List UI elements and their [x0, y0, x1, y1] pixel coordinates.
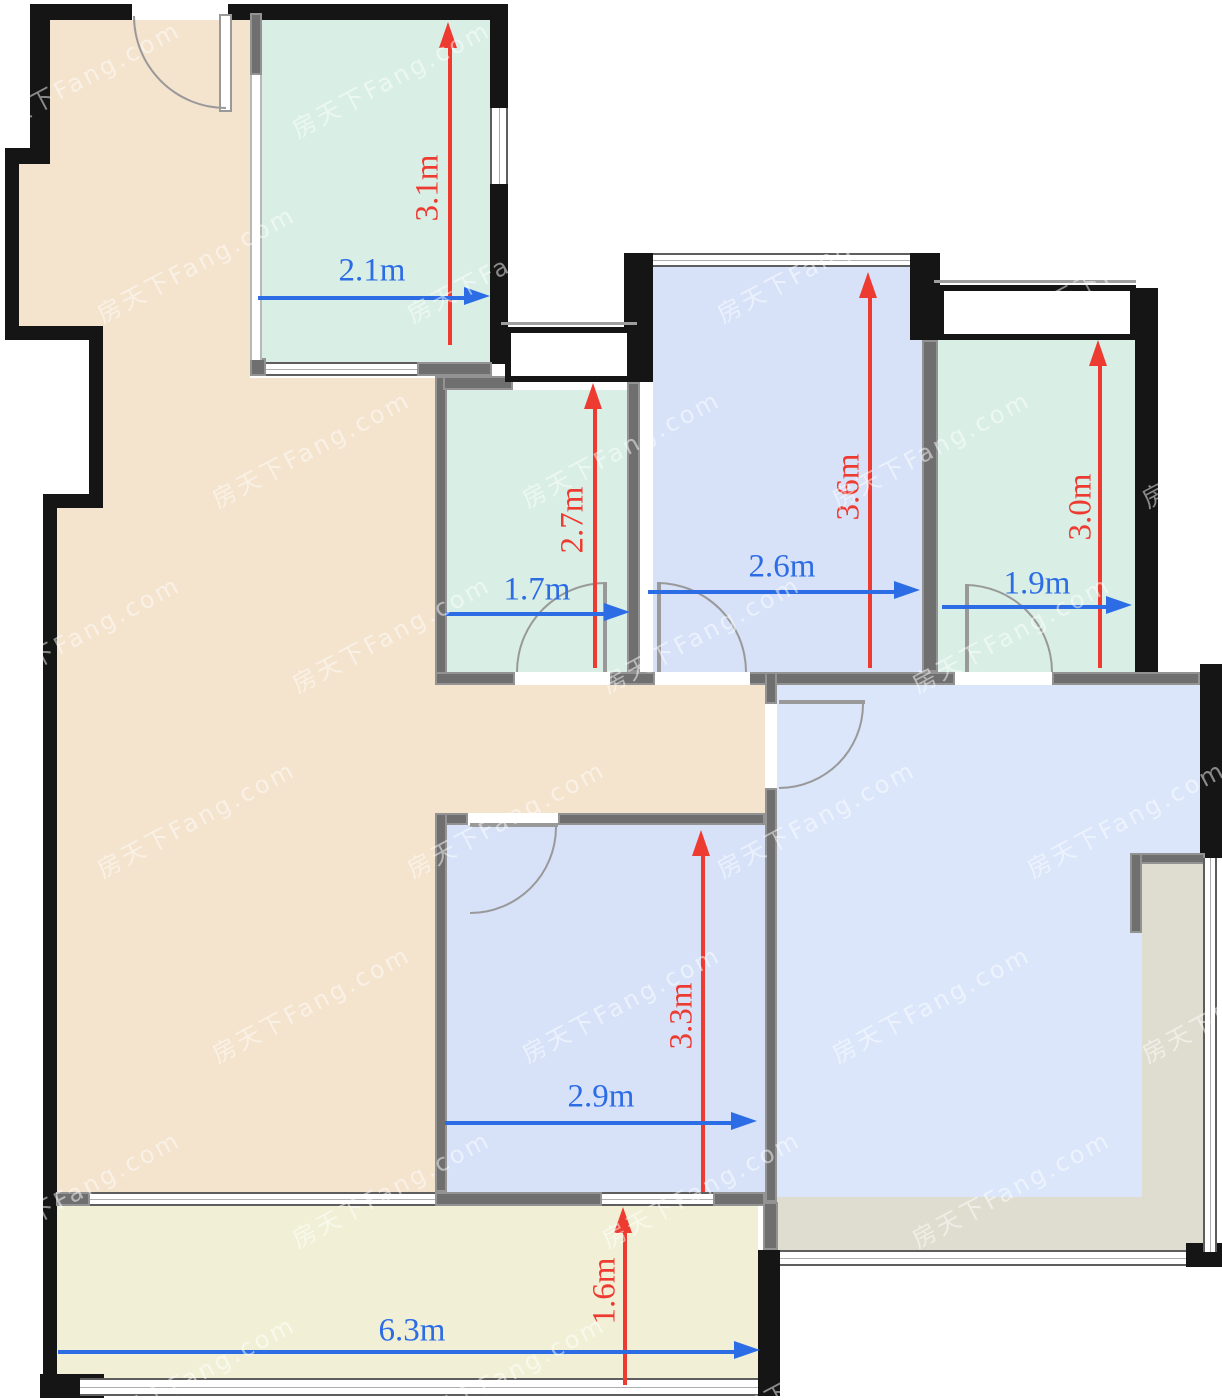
watermark-text: 房天下Fang.com — [905, 10, 1116, 144]
watermark-text: 房天下Fang.com — [205, 380, 416, 514]
watermark-text: 房天下Fang.com — [905, 565, 1116, 699]
watermark-text: 房天下Fang.com — [710, 195, 921, 329]
watermark-text: 房天下Fang.com — [825, 380, 1036, 514]
watermark-text: 房天下Fang.com — [595, 1120, 806, 1254]
watermark-text: 房天下Fang.com — [0, 10, 186, 144]
watermark-text: 房天下Fang.com — [285, 565, 496, 699]
watermark-text: 房天下Fang.com — [515, 380, 726, 514]
watermark-text: 房天下Fang.com — [0, 1120, 186, 1254]
watermark-text: 房天下Fang.com — [285, 10, 496, 144]
watermark-text: 房天下Fang.com — [905, 1120, 1116, 1254]
watermark-text: 房天下Fang.com — [1135, 380, 1222, 514]
floor-plan: 3.1m2.1m2.7m1.7m3.6m2.6m3.0m1.9m3.3m2.9m… — [0, 0, 1222, 1400]
watermark-text: 房天下Fang.com — [1135, 935, 1222, 1069]
watermark-layer: 房天下Fang.com房天下Fang.com房天下Fang.com房天下Fang… — [0, 0, 1222, 1400]
watermark-text: 房天下Fang.com — [595, 10, 806, 144]
watermark-text: 房天下Fang.com — [90, 1305, 301, 1400]
watermark-text: 房天下Fang.com — [400, 750, 611, 884]
watermark-text: 房天下Fang.com — [90, 195, 301, 329]
watermark-text: 房天下Fang.com — [595, 565, 806, 699]
watermark-text: 房天下Fang.com — [400, 1305, 611, 1400]
watermark-text: 房天下Fang.com — [285, 1120, 496, 1254]
watermark-text: 房天下Fang.com — [205, 935, 416, 1069]
watermark-text: 房天下Fang.com — [1020, 1305, 1222, 1400]
watermark-text: 房天下Fang.com — [0, 565, 186, 699]
watermark-text: 房天下Fang.com — [1020, 750, 1222, 884]
watermark-text: 房天下Fang.com — [1020, 195, 1222, 329]
watermark-text: 房天下Fang.com — [400, 195, 611, 329]
watermark-text: 房天下Fang.com — [710, 750, 921, 884]
watermark-text: 房天下Fang.com — [710, 1305, 921, 1400]
watermark-text: 房天下Fang.com — [825, 935, 1036, 1069]
watermark-text: 房天下Fang.com — [515, 935, 726, 1069]
watermark-text: 房天下Fang.com — [90, 750, 301, 884]
